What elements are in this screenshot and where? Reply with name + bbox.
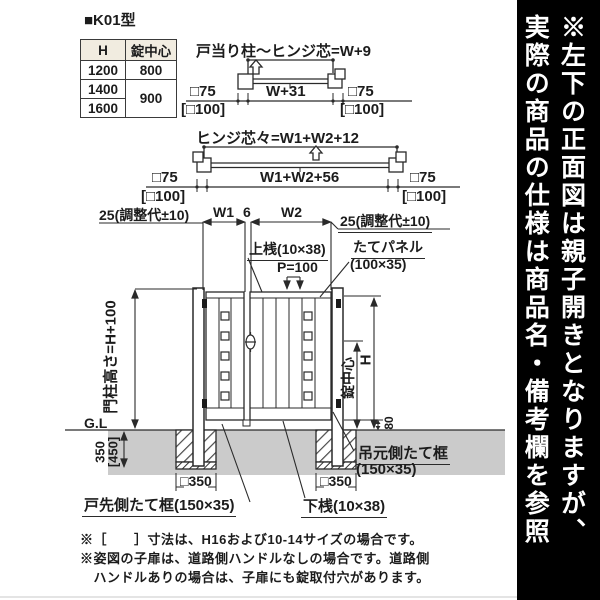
hinge-post-plan <box>238 74 253 89</box>
swing-direction-arrow <box>250 60 262 74</box>
plan2-left-post-size-alt: [□100] <box>141 188 185 205</box>
plan1-left-post-size-alt: [□100] <box>181 101 225 118</box>
spec-table-header-h: H <box>81 40 126 61</box>
fv-height-label: H <box>358 355 375 366</box>
notice-vertical-text: ※左下の正面図は親子開きとなりますが、 実際の商品の仕様は商品名・備考欄を参照 <box>517 0 596 600</box>
plan2-right-post-size: □75 <box>410 169 436 186</box>
child-door <box>206 292 244 420</box>
table-cell: 800 <box>126 61 177 80</box>
plan2-width-dim: W1+W2+56 <box>260 169 339 186</box>
fv-embed-depth-alt-label: [450] <box>106 437 121 467</box>
fv-bottom-rail-label: 下桟(10×38) <box>301 495 387 518</box>
notice-sidebar: ※左下の正面図は親子開きとなりますが、 実際の商品の仕様は商品名・備考欄を参照 <box>517 0 600 600</box>
fv-bottom-clearance-label: 80 <box>382 416 396 429</box>
plan2-left-post-size: □75 <box>152 169 178 186</box>
fv-panel-label-2: (100×35) <box>350 256 406 272</box>
spec-table: H 錠中心 1200 800 1400 900 1600 <box>80 39 177 118</box>
table-cell: 1200 <box>81 61 126 80</box>
footnotes: ※［ ］寸法は、H16および10-14サイズの場合です。 ※姿図の子扉は、道路側… <box>80 530 430 587</box>
fv-ground-level-label: G.L <box>84 415 107 431</box>
spec-table-header-lock: 錠中心 <box>126 40 177 61</box>
plan1-right-post-size: □75 <box>348 83 374 100</box>
plan1-left-post-size: □75 <box>190 83 216 100</box>
meeting-stop-block <box>243 420 250 426</box>
fv-adjust-right: 25(調整代±10) <box>338 211 432 233</box>
fv-adjust-left: 25(調整代±10) <box>99 205 189 225</box>
fv-footing-right-label: □350 <box>320 473 352 489</box>
fv-latch-stile-label: 戸先側たて框(150×35) <box>82 494 236 517</box>
product-spec-image: ■K01型 H 錠中心 1200 800 1400 900 1600 戸当り柱〜… <box>0 0 600 600</box>
table-cell: 1600 <box>81 99 126 118</box>
footnote-line: ハンドルありの場合は、子扉にも錠取付穴があります。 <box>80 568 430 587</box>
fv-footing-left-label: □350 <box>180 473 212 489</box>
fv-w2: W2 <box>281 204 302 220</box>
plan1-title: 戸当り柱〜ヒンジ芯=W+9 <box>196 40 371 61</box>
fv-w1: W1 <box>213 204 234 220</box>
footnote-line: ※［ ］寸法は、H16および10-14サイズの場合です。 <box>80 530 430 549</box>
plan2-right-post-size-alt: [□100] <box>402 188 446 205</box>
footnote-line: ※姿図の子扉は、道路側ハンドルなしの場合です。道路側 <box>80 549 430 568</box>
main-door <box>250 292 331 420</box>
fv-pitch-label: P=100 <box>277 259 318 275</box>
fv-hinge-stile-label-2: (150×35) <box>356 461 416 478</box>
plan1-width-dim: W+31 <box>266 83 306 100</box>
fv-post-height-label: 門柱高さ=H+100 <box>100 300 121 413</box>
top-rail-leader <box>248 258 262 292</box>
swing-direction-arrow <box>310 146 322 160</box>
table-cell: 900 <box>126 80 177 118</box>
fv-lock-center-label: 錠中心 <box>338 357 358 399</box>
notice-line-1: ※左下の正面図は親子開きとなりますが、 <box>553 14 589 592</box>
gate-post-left <box>193 288 204 466</box>
table-cell: 1400 <box>81 80 126 99</box>
plan2-title: ヒンジ芯々=W1+W2+12 <box>196 127 359 148</box>
notice-line-2: 実際の商品の仕様は商品名・備考欄を参照 <box>517 14 553 592</box>
fv-gap: 6 <box>243 204 251 220</box>
plan1-right-post-size-alt: [□100] <box>340 101 384 118</box>
model-label: ■K01型 <box>84 9 136 30</box>
fv-top-rail-label: 上桟(10×38) <box>247 239 328 261</box>
